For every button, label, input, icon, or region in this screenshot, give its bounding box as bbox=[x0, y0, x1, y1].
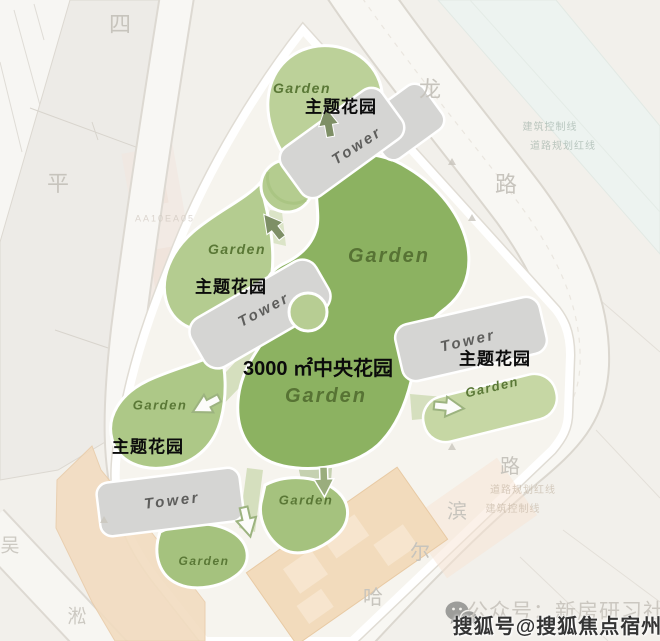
sohu-watermark: 搜狐号@搜狐焦点宿州站 bbox=[453, 617, 660, 637]
street-haerbin-char-2: 尔 bbox=[410, 543, 430, 563]
street-long-char-2: 路 bbox=[495, 174, 517, 196]
site-plan-drawing bbox=[0, 0, 660, 641]
annotation-building-control-line-south: 建筑控制线 bbox=[486, 505, 541, 515]
garden-label-central-lower: Garden bbox=[285, 386, 367, 406]
street-wusong-char-2: 淞 bbox=[67, 608, 86, 627]
garden-label-central-upper: Garden bbox=[348, 246, 430, 266]
street-haerbin-char-4: 路 bbox=[500, 457, 520, 477]
garden-label-south: Garden bbox=[279, 494, 334, 507]
theme-garden-label-north: 主题花园 bbox=[305, 99, 377, 116]
annotation-road-red-line-south: 道路规划红线 bbox=[490, 486, 556, 496]
street-haerbin-char-1: 哈 bbox=[363, 588, 383, 608]
garden-label-north: Garden bbox=[273, 81, 331, 95]
street-haerbin-char-3: 滨 bbox=[447, 502, 467, 522]
site-plan-map: 四 平 龙 路 路 滨 尔 哈 吴 淞 建筑控制线 道路规划红线 道路规划红线 … bbox=[0, 0, 660, 641]
annotation-plot-code: AA10EA05 bbox=[135, 215, 195, 224]
street-siping-char-1: 四 bbox=[109, 14, 131, 36]
central-garden-label: 3000 ㎡中央花园 bbox=[243, 359, 393, 379]
garden-label-southwest: Garden bbox=[133, 399, 188, 412]
street-siping-char-2: 平 bbox=[47, 173, 69, 195]
theme-garden-label-east: 主题花园 bbox=[459, 351, 531, 368]
street-wusong-char-1: 吴 bbox=[0, 537, 19, 556]
theme-garden-label-southwest: 主题花园 bbox=[112, 439, 184, 456]
annotation-road-red-line-north: 道路规划红线 bbox=[530, 142, 596, 152]
street-long-char-1: 龙 bbox=[419, 79, 441, 101]
theme-garden-label-west: 主题花园 bbox=[195, 279, 267, 296]
garden-label-south-small: Garden bbox=[178, 555, 229, 567]
garden-label-west: Garden bbox=[208, 242, 266, 256]
annotation-building-control-line-north: 建筑控制线 bbox=[523, 123, 578, 133]
garden-circle-mid bbox=[289, 293, 327, 331]
